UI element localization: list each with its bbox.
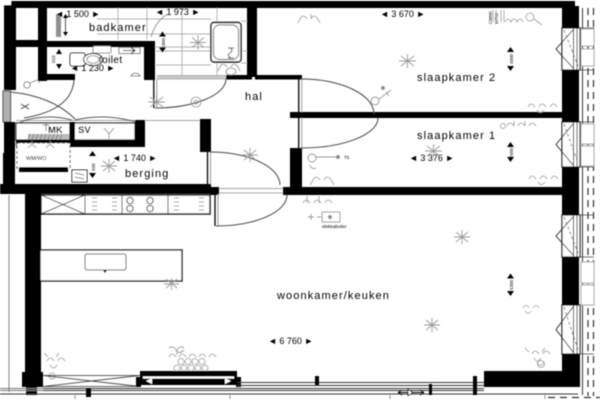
svg-text:slaapkamer 2: slaapkamer 2 [417,72,496,84]
svg-text:elektraboiler: elektraboiler [322,224,347,229]
svg-text:MK: MK [48,125,63,136]
svg-text:◄ 1 500 ►: ◄ 1 500 ► [55,9,100,19]
svg-text:SV: SV [78,125,91,136]
svg-text:berging: berging [125,168,169,180]
svg-text:WTW: WTW [494,12,499,24]
svg-text:2900: 2900 [509,147,514,158]
svg-text:T5: T5 [344,155,350,160]
svg-text:◄ 1 973 ►: ◄ 1 973 ► [155,7,200,17]
svg-text:badkamer: badkamer [89,22,147,34]
svg-text:910: 910 [51,55,56,63]
svg-text:WM/WD: WM/WD [26,156,46,162]
svg-text:◄ 1 740 ►: ◄ 1 740 ► [112,153,157,163]
svg-text:◄ 3 376 ►: ◄ 3 376 ► [409,153,454,163]
svg-text:hal: hal [245,91,263,103]
svg-text:◄ 6 760 ►: ◄ 6 760 ► [268,336,313,346]
svg-text:5300: 5300 [509,279,514,290]
svg-text:◄ 1 230 ►: ◄ 1 230 ► [70,63,115,73]
svg-text:930: 930 [91,163,96,171]
svg-text:◄ 3 670 ►: ◄ 3 670 ► [380,9,425,19]
svg-text:4900: 4900 [509,53,514,64]
svg-text:woonkamer/keuken: woonkamer/keuken [276,290,390,302]
svg-text:1860: 1860 [161,37,166,48]
svg-text:CW90: CW90 [488,11,493,24]
svg-text:slaapkamer 1: slaapkamer 1 [417,130,496,142]
